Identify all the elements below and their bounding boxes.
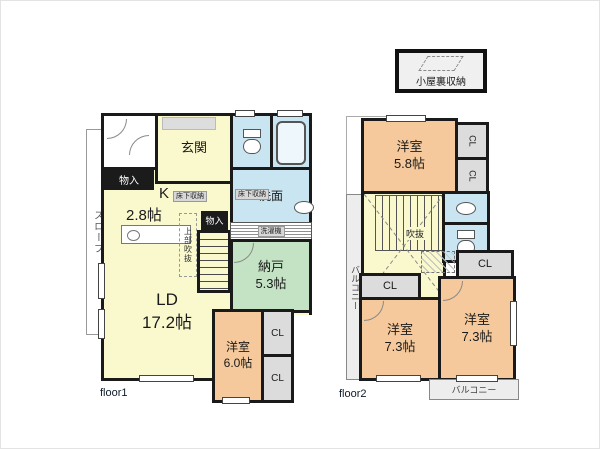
attic-ladder-icon [418, 56, 463, 71]
bedroom-58-name: 洋室 [396, 139, 422, 156]
attic-storage-box: 小屋裏収納 [395, 49, 487, 93]
window [139, 375, 194, 382]
storage-stairs-label: 物入 [205, 214, 223, 227]
window [98, 309, 105, 339]
underfloor-storage-tag: 床下収納 [173, 191, 207, 202]
closet-label: CL [271, 327, 284, 340]
toilet-icon [243, 129, 261, 154]
bedroom-6-size: 6.0帖 [224, 356, 253, 372]
storage-stairs-box: 物入 [201, 211, 228, 230]
bedroom-6-room: 洋室 6.0帖 [212, 309, 264, 403]
window [277, 110, 303, 117]
closet-label: CL [466, 170, 478, 182]
window [235, 110, 255, 117]
floor2-caption: floor2 [339, 388, 367, 400]
storage-hall-box: 物入 [104, 168, 154, 190]
void-above-label: 上部吹抜 [183, 227, 194, 263]
window [98, 263, 105, 299]
balcony-bottom-label: バルコニー [452, 383, 497, 396]
toilet-room-f1 [230, 113, 273, 170]
washbasin-icon [456, 202, 476, 215]
storage-hall-label: 物入 [119, 172, 139, 187]
floor1-caption: floor1 [100, 387, 128, 399]
floor1-notch [294, 315, 314, 383]
closet-f1-upper: CL [261, 309, 294, 357]
attic-storage-label: 小屋裏収納 [416, 73, 466, 88]
living-dining-label: LD 17.2帖 [113, 289, 221, 335]
bedroom-58-size: 5.8帖 [394, 156, 425, 173]
window [386, 115, 426, 122]
bedroom-73-right-name: 洋室 [464, 312, 490, 329]
ld-name: LD [113, 289, 221, 312]
window [510, 301, 517, 346]
kitchen-name: K [159, 185, 169, 202]
void-above-area: 上部吹抜 [179, 213, 197, 277]
closet-label: CL [478, 257, 492, 271]
closet-label: CL [383, 279, 397, 293]
entrance-step [162, 117, 216, 130]
bedroom-6-name: 洋室 [226, 340, 250, 356]
entrance-label: 玄関 [181, 140, 207, 157]
closet-f2-a: CL [455, 122, 489, 160]
void-label: 吹抜 [405, 227, 425, 240]
closet-f2-d: CL [359, 273, 421, 300]
closet-f2-b: CL [455, 157, 489, 194]
bedroom-73-left-size: 7.3帖 [384, 339, 415, 356]
stairs-f1 [197, 230, 231, 293]
window [222, 397, 250, 404]
attic-hatch-area [421, 251, 455, 273]
laundry-label: 洗濯機 [258, 226, 285, 237]
kitchen-sink-icon [127, 230, 140, 241]
floorplan-canvas: スロープ 玄関 浴室 洗面 床下収納 物入 K 2.8帖 床下収納 上部吹抜 [0, 0, 600, 449]
washbasin-icon [294, 201, 314, 214]
bathtub-icon [276, 121, 306, 165]
window [376, 375, 421, 382]
window [456, 375, 498, 382]
underfloor-storage-tag: 床下収納 [235, 189, 269, 200]
bedroom-73-left-name: 洋室 [387, 322, 413, 339]
storeroom-size: 5.3帖 [255, 276, 286, 293]
ld-size: 17.2帖 [113, 312, 221, 335]
kitchen-size: 2.8帖 [126, 204, 162, 225]
storeroom-name: 納戸 [258, 259, 284, 276]
washbasin-room-f2 [442, 191, 490, 225]
bedroom-73-right-size: 7.3帖 [461, 329, 492, 346]
bedroom-58-room: 洋室 5.8帖 [361, 118, 458, 194]
balcony-bottom: バルコニー [429, 379, 519, 400]
closet-label: CL [466, 135, 478, 147]
closet-label: CL [271, 372, 284, 385]
closet-f2-c: CL [456, 250, 514, 279]
closet-f1-lower: CL [261, 354, 294, 403]
